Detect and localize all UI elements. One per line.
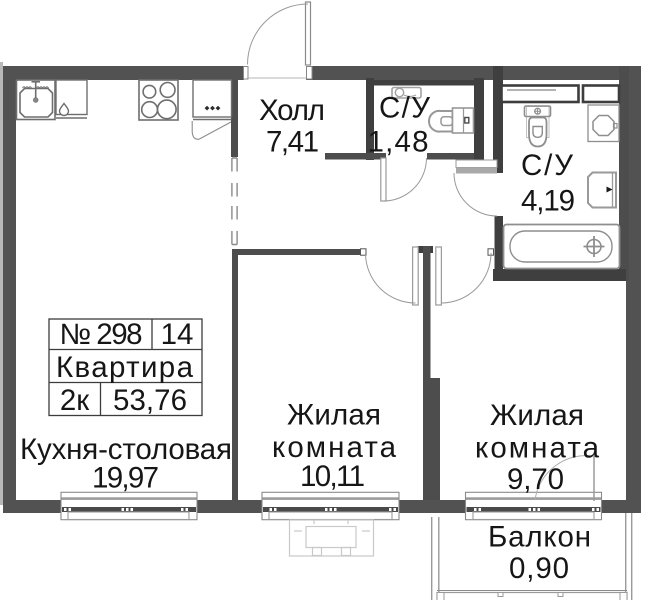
svg-text:10,11: 10,11	[300, 460, 365, 493]
svg-text:2к: 2к	[60, 384, 90, 417]
svg-text:1,48: 1,48	[368, 126, 429, 159]
svg-text:19,97: 19,97	[92, 462, 159, 495]
svg-text:14: 14	[161, 318, 194, 351]
svg-text:53,76: 53,76	[113, 384, 187, 417]
svg-text:4,19: 4,19	[521, 185, 575, 218]
svg-text:№ 298: № 298	[60, 318, 143, 351]
svg-text:7,41: 7,41	[266, 126, 319, 159]
svg-text:Жилая: Жилая	[287, 399, 381, 432]
svg-text:0,90: 0,90	[509, 552, 569, 585]
svg-text:9,70: 9,70	[507, 463, 564, 496]
svg-text:Балкон: Балкон	[488, 521, 591, 554]
svg-text:Жилая: Жилая	[490, 399, 584, 432]
svg-text:С/У: С/У	[379, 92, 430, 125]
svg-text:Холл: Холл	[259, 94, 325, 127]
svg-text:С/У: С/У	[521, 149, 573, 182]
